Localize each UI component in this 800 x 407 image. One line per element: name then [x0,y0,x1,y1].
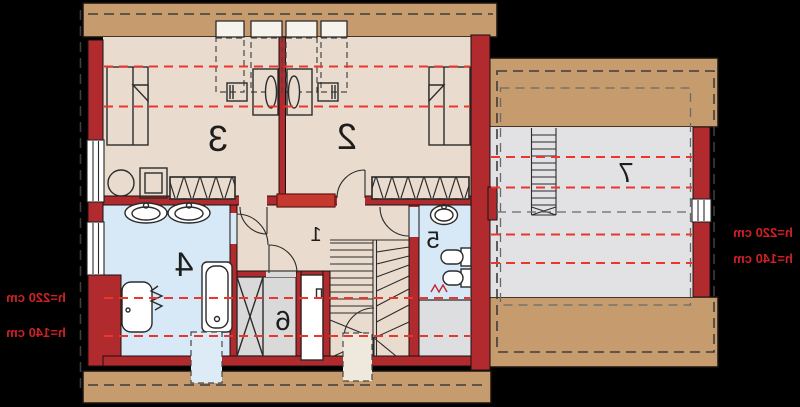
washbasin-icon [125,203,167,223]
door-jamb-left [296,271,301,356]
roof-band-garage-bottom [489,297,718,367]
room-number-3: 3 [208,118,228,159]
roof-window-icon [286,21,317,37]
height-label-right-140: h=140 cm [733,251,793,266]
chair-icon [266,76,277,108]
room-number-4: 4 [175,246,194,284]
roof-band-bottom [83,371,491,403]
chimney-icon [277,194,335,207]
wall-right-bump [488,187,497,220]
stair-closet-door [301,275,323,360]
door-jamb-right [323,271,330,356]
door-opening-room6 [266,272,296,278]
washing-machine-icon [122,282,152,332]
wardrobe-icon [372,177,469,199]
wall-bottom [103,356,471,366]
window-icon [692,199,711,222]
roof-window-icon [216,21,244,37]
door-handle-icon [317,289,322,298]
door-opening-room2 [337,196,365,206]
roof-window-icon [251,21,282,37]
door-opening-bath5 [410,207,419,237]
height-label-right-220: h=220 cm [733,225,793,240]
floor-plan-page: 1 2 3 4 5 6 7 h=220 cm h=140 cm h=220 cm… [0,0,800,407]
roof-band-garage-top [489,58,718,127]
door-opening-bath4 [231,213,237,244]
wardrobe-icon [170,177,235,199]
skylight-fill [343,333,372,381]
wall-right [471,35,490,370]
chair-icon [289,76,300,108]
floor-plan-svg: 1 2 3 4 5 6 7 h=220 cm h=140 cm h=220 cm… [0,0,800,407]
roof-window-icon [321,21,347,37]
bidet-icon [443,269,471,287]
height-label-left-220: h=220 cm [6,290,66,305]
height-label-left-140: h=140 cm [6,325,66,340]
toilet-icon [441,248,471,266]
window-icon [87,140,104,202]
window-icon [87,222,104,275]
storage-under-slope-floor [418,300,471,356]
door-opening-room3 [239,196,267,206]
room-number-5: 5 [426,227,439,254]
room-number-7: 7 [618,157,634,188]
room-number-1: 1 [310,224,321,246]
room-number-6: 6 [275,305,291,336]
washbasin-icon [168,203,210,223]
skylight-fill [191,332,222,383]
wall-left-corner-chunk [88,275,121,366]
room-number-2: 2 [337,116,357,157]
